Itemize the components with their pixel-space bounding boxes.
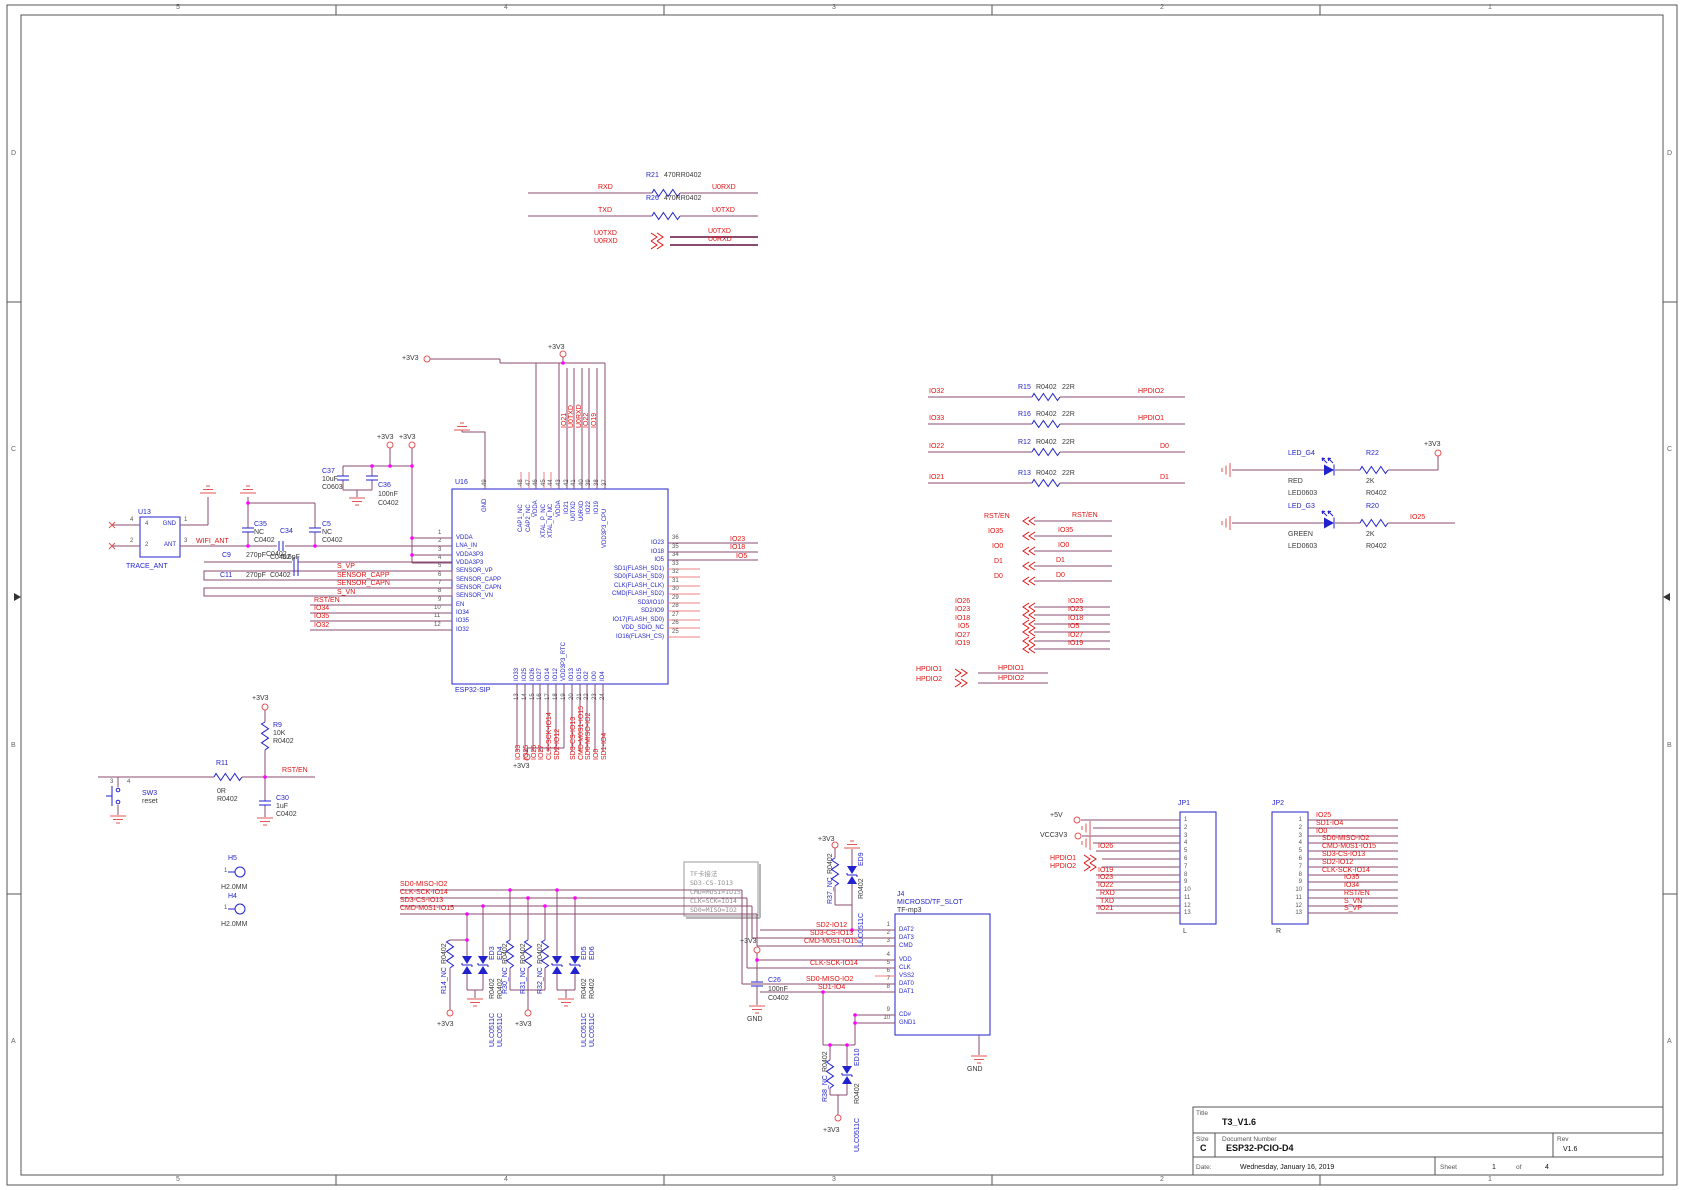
esp32-net: IO23 bbox=[730, 536, 745, 543]
esp32-pin: 35 bbox=[672, 544, 679, 550]
reset-val: reset bbox=[142, 798, 158, 805]
headers-net: S_VP bbox=[1344, 905, 1362, 912]
diode_arrays-ref: R32_NC bbox=[537, 967, 544, 994]
tf_slot-val: R0402 bbox=[858, 878, 865, 899]
tf_slot-ref: MICROSD/TF_SLOT bbox=[897, 899, 963, 906]
tf_slot-pin: 4 bbox=[887, 952, 890, 958]
power_caps-val: 100nF bbox=[378, 491, 398, 498]
power_caps-pwr: +3V3 bbox=[377, 434, 394, 441]
antenna-ref: TRACE_ANT bbox=[126, 563, 168, 570]
antenna-val: C0402 bbox=[270, 572, 291, 579]
esp32-pname: IO26 bbox=[530, 668, 536, 681]
esp32-pname: IO19 bbox=[594, 501, 600, 514]
headers-pin: 5 bbox=[1299, 848, 1302, 854]
offpage-net: D0 bbox=[994, 573, 1003, 580]
esp32-net: IO21 bbox=[561, 413, 568, 428]
esp32-pin: 29 bbox=[672, 595, 679, 601]
headers-pin: 3 bbox=[1299, 833, 1302, 839]
tf_note-note: CMD=MOSI=IO15 bbox=[690, 888, 741, 896]
esp32-pin: 18 bbox=[553, 693, 559, 700]
headers-pin: 10 bbox=[1295, 887, 1302, 893]
esp32-pin: 15 bbox=[530, 693, 536, 700]
esp32-net: IO0 bbox=[593, 749, 600, 760]
esp32-pname: IO2 bbox=[584, 671, 590, 681]
holes-ref: H4 bbox=[228, 893, 237, 900]
esp32-net: IO27 bbox=[538, 745, 545, 760]
tf_slot-ref: J4 bbox=[897, 891, 904, 898]
offpage-net: IO5 bbox=[1068, 623, 1079, 630]
reset-val: R0402 bbox=[273, 738, 294, 745]
diode_arrays-ref: ULC0511C bbox=[589, 1013, 596, 1047]
esp32-pname: SENSOR_VN bbox=[456, 593, 493, 599]
offpage-net: IO18 bbox=[955, 615, 970, 622]
esp32-pname: IO34 bbox=[456, 610, 469, 616]
zone-col: 2 bbox=[1160, 4, 1164, 11]
esp32-pin: 19 bbox=[561, 693, 567, 700]
holes-pin: 1 bbox=[224, 905, 227, 911]
antenna-net: WIFI_ANT bbox=[196, 538, 229, 545]
esp32-pin: 43 bbox=[556, 479, 562, 486]
offpage-net: IO19 bbox=[1068, 640, 1083, 647]
esp32-pin: 21 bbox=[577, 693, 583, 700]
reset-val: C0402 bbox=[276, 811, 297, 818]
zone-col: 2 bbox=[1160, 1176, 1164, 1183]
links-net: HPDIO1 bbox=[1138, 415, 1164, 422]
esp32-pin: 42 bbox=[564, 479, 570, 486]
tf_slot-ref: C26 bbox=[768, 977, 781, 984]
tf_slot-ref: ULC0511C bbox=[858, 913, 865, 947]
antenna-pin: 4 bbox=[145, 521, 148, 527]
headers-pin: 9 bbox=[1184, 879, 1187, 885]
esp32-pname: U0TXD bbox=[571, 501, 577, 521]
power_caps-pwr: +3V3 bbox=[399, 434, 416, 441]
tf_slot-pwr: GND bbox=[967, 1066, 983, 1073]
power_caps-val: C0402 bbox=[378, 500, 399, 507]
antenna-val: NC bbox=[254, 529, 264, 536]
headers-pin: 6 bbox=[1299, 856, 1302, 862]
headers-net: IO34 bbox=[1344, 882, 1359, 889]
headers-net: SD2-IO12 bbox=[1322, 859, 1353, 866]
esp32-pin: 9 bbox=[438, 597, 441, 603]
esp32-pin: 40 bbox=[579, 479, 585, 486]
power_caps-ref: C36 bbox=[378, 482, 391, 489]
zone-col: 4 bbox=[504, 1176, 508, 1183]
tf_slot-pwr: +3V3 bbox=[740, 938, 757, 945]
esp32-net: CMD-M0S1-IO15 bbox=[578, 706, 585, 760]
esp32-pname: VDDA3P3 bbox=[456, 560, 483, 566]
esp32-pname: SD2/IO9 bbox=[641, 608, 664, 614]
esp32-pin: 37 bbox=[602, 479, 608, 486]
links-net: D1 bbox=[1160, 474, 1169, 481]
tf_slot-pin: 1 bbox=[887, 922, 890, 928]
esp32-pin: 44 bbox=[548, 479, 554, 486]
zone-col: 3 bbox=[832, 1176, 836, 1183]
offpage-net: RST/EN bbox=[1072, 512, 1098, 519]
headers-net: TXD bbox=[1100, 898, 1114, 905]
title-label: Title bbox=[1196, 1110, 1208, 1117]
esp32-pname: CLK(FLASH_CLK) bbox=[614, 583, 664, 589]
antenna-net: IO32 bbox=[314, 622, 329, 629]
zone-row: B bbox=[1667, 742, 1672, 749]
holes-val: H2.0MM bbox=[221, 884, 247, 891]
tf_slot-pwr: +3V3 bbox=[818, 836, 835, 843]
serial-net: U0TXD bbox=[708, 228, 731, 235]
reset-ref: R11 bbox=[216, 760, 228, 767]
reset-ref: C30 bbox=[276, 795, 289, 802]
esp32-pname: U0RXD bbox=[579, 501, 585, 521]
leds-pwr: +3V3 bbox=[1424, 441, 1441, 448]
sheet-title: T3_V1.6 bbox=[1222, 1119, 1256, 1126]
offpage-net: D1 bbox=[994, 558, 1003, 565]
links-ref: R13 bbox=[1018, 470, 1031, 477]
tf_slot-ref: ULC0511C bbox=[854, 1118, 861, 1152]
leds-val: LED0603 bbox=[1288, 543, 1317, 550]
esp32-net: CLK-SCK-IO14 bbox=[546, 712, 553, 760]
esp32-pin: 6 bbox=[438, 572, 441, 578]
tf_slot-pname: CD# bbox=[899, 1012, 911, 1018]
offpage-net: IO35 bbox=[988, 528, 1003, 535]
sheet-number: 1 bbox=[1492, 1164, 1496, 1171]
tf_slot-pin: 8 bbox=[887, 984, 890, 990]
esp32-pname: VDDA3P3 bbox=[456, 552, 483, 558]
component-outlines bbox=[106, 489, 1308, 1035]
tf_slot-pin: 2 bbox=[887, 930, 890, 936]
antenna-val: 270pF bbox=[246, 572, 266, 579]
offpage-net: IO23 bbox=[1068, 606, 1083, 613]
diode_arrays-ref: R30_NC bbox=[502, 967, 509, 994]
esp32-pwr: +3V3 bbox=[513, 763, 530, 770]
headers-pin: 13 bbox=[1184, 910, 1191, 916]
headers-net: SD0-MISO-IO2 bbox=[1322, 835, 1369, 842]
diode_arrays-val: R0402 bbox=[489, 978, 496, 999]
bus-net: SD3-CS-IO13 bbox=[400, 897, 443, 904]
esp32-pin: 20 bbox=[569, 693, 575, 700]
tf_slot-pname: CLK bbox=[899, 965, 911, 971]
headers-pin: 4 bbox=[1299, 840, 1302, 846]
esp32-pname: VDD3P3_RTC bbox=[561, 642, 567, 681]
esp32-pin: 34 bbox=[672, 552, 679, 558]
antenna-ref: C35 bbox=[254, 521, 267, 528]
esp32-net: IO22 bbox=[583, 413, 590, 428]
headers-net: RXD bbox=[1100, 890, 1115, 897]
esp32-pin: 23 bbox=[592, 693, 598, 700]
zone-row: C bbox=[11, 446, 16, 453]
headers-net: SD1-IO4 bbox=[1316, 820, 1343, 827]
offpage-net: IO27 bbox=[1068, 632, 1083, 639]
headers-pin: 5 bbox=[1184, 848, 1187, 854]
tf_slot-ref: R38_NC bbox=[822, 1075, 829, 1102]
leds-val: R0402 bbox=[1366, 490, 1387, 497]
reset-pwr: +3V3 bbox=[252, 695, 269, 702]
esp32-pname: CAP2_NC bbox=[526, 504, 532, 532]
antenna-val: 270pF bbox=[246, 552, 266, 559]
reset-val: R0402 bbox=[217, 796, 238, 803]
leds-ref: R20 bbox=[1366, 503, 1379, 510]
offpage-net: IO27 bbox=[955, 632, 970, 639]
power_caps-val: C0603 bbox=[322, 484, 343, 491]
tf_slot-pname: DAT2 bbox=[899, 927, 914, 933]
esp32-net: SD0-MISO-IO2 bbox=[585, 713, 592, 760]
links-val: R0402 bbox=[1036, 411, 1057, 418]
tf_slot-pin: 5 bbox=[887, 960, 890, 966]
diode_arrays-val: R0402 bbox=[581, 978, 588, 999]
esp32-pin: 36 bbox=[672, 535, 679, 541]
headers-net: RST/EN bbox=[1344, 890, 1370, 897]
esp32-pname: IO4 bbox=[600, 671, 606, 681]
zone-col: 4 bbox=[504, 4, 508, 11]
esp32-pin: 3 bbox=[438, 547, 441, 553]
diode_arrays-val: R0402 bbox=[441, 943, 448, 964]
serial-net: TXD bbox=[598, 207, 612, 214]
zone-row: D bbox=[1667, 150, 1672, 157]
tf_slot-ref: ED9 bbox=[858, 852, 865, 866]
esp32-net: SD1-IO4 bbox=[601, 733, 608, 760]
sheet-of-label: of bbox=[1516, 1164, 1521, 1171]
offpage-net: IO0 bbox=[992, 543, 1003, 550]
links-net: IO21 bbox=[929, 474, 944, 481]
zone-row: B bbox=[11, 742, 16, 749]
zone-col: 1 bbox=[1488, 1176, 1492, 1183]
esp32-pname: IO16(FLASH_CS) bbox=[616, 634, 664, 640]
tf_slot-net: CLK-SCK-IO14 bbox=[810, 960, 858, 967]
headers-pin: 7 bbox=[1184, 864, 1187, 870]
tf_note-note: SD3-CS-IO13 bbox=[690, 879, 733, 887]
tf_slot-pname: VSS2 bbox=[899, 973, 914, 979]
links-net: IO32 bbox=[929, 388, 944, 395]
esp32-net: IO26 bbox=[531, 745, 538, 760]
esp32-pwr: +3V3 bbox=[548, 344, 565, 351]
diode_arrays-ref: ULC0511C bbox=[497, 1013, 504, 1047]
bus-net: CMD-M0S1-IO15 bbox=[400, 905, 454, 912]
leds-val: 2K bbox=[1366, 531, 1375, 538]
diode_arrays-pwr: +3V3 bbox=[437, 1021, 454, 1028]
zone-row: A bbox=[11, 1038, 16, 1045]
esp32-pname: EN bbox=[456, 602, 464, 608]
serial-ref: R21 bbox=[646, 172, 659, 179]
reset-pin: 3 bbox=[110, 779, 113, 785]
tf_slot-net: SD0-MISO-IO2 bbox=[806, 976, 853, 983]
tf_slot-pwr: +3V3 bbox=[823, 1127, 840, 1134]
esp32-pname: VDD3P3_CPU bbox=[602, 509, 608, 548]
esp32-net: U0RXD bbox=[576, 404, 583, 428]
holes-val: H2.0MM bbox=[221, 921, 247, 928]
esp32-net: IO19 bbox=[591, 413, 598, 428]
headers-net: IO35 bbox=[1344, 874, 1359, 881]
antenna-val: C0402 bbox=[322, 537, 343, 544]
serial-val: 470RR0402 bbox=[664, 195, 701, 202]
antenna-val: C0402 bbox=[270, 554, 291, 561]
serial-net: U0RXD bbox=[708, 236, 732, 243]
esp32-ref: ESP32-SIP bbox=[455, 687, 490, 694]
antenna-net: S_VN bbox=[337, 589, 355, 596]
esp32-pname: IO13 bbox=[569, 668, 575, 681]
esp32-net: IO25 bbox=[523, 745, 530, 760]
antenna-pin: 2 bbox=[145, 542, 148, 548]
tf_slot-val: R0402 bbox=[854, 1083, 861, 1104]
tf_slot-pname: DAT1 bbox=[899, 989, 914, 995]
schematic-sheet: R21470RR0402RXDU0RXDR26470RR0402TXDU0TXD… bbox=[0, 0, 1684, 1190]
esp32-pname: IO12 bbox=[553, 668, 559, 681]
headers-net: HPDIO2 bbox=[1050, 863, 1076, 870]
headers-net: SD3-CS-IO13 bbox=[1322, 851, 1365, 858]
esp32-pin: 22 bbox=[584, 693, 590, 700]
esp32-pin: 49 bbox=[482, 479, 488, 486]
diode_arrays-ref: ED5 bbox=[581, 946, 588, 960]
reset-pin: 4 bbox=[127, 779, 130, 785]
esp32-pin: 10 bbox=[434, 605, 441, 611]
esp32-pin: 25 bbox=[672, 629, 679, 635]
esp32-pname: XTAL_P_NC bbox=[541, 504, 547, 538]
esp32-pname: IO5 bbox=[654, 557, 664, 563]
holes-ref: H5 bbox=[228, 855, 237, 862]
esp32-pname: IO18 bbox=[651, 549, 664, 555]
headers-net: CMD-M0S1-IO15 bbox=[1322, 843, 1376, 850]
reset-ref: SW3 bbox=[142, 790, 157, 797]
antenna-pin: 3 bbox=[184, 538, 187, 544]
antenna-ref: C9 bbox=[222, 552, 231, 559]
leds-val: 2K bbox=[1366, 478, 1375, 485]
esp32-net: IO18 bbox=[730, 544, 745, 551]
tf_slot-pname: DAT3 bbox=[899, 935, 914, 941]
tf_slot-ref: ED10 bbox=[854, 1048, 861, 1066]
headers-pin: 9 bbox=[1299, 879, 1302, 885]
serial-ref: R26 bbox=[646, 195, 659, 202]
esp32-pin: 14 bbox=[522, 693, 528, 700]
offpage-net: HPDIO2 bbox=[916, 676, 942, 683]
headers-pin: 12 bbox=[1295, 903, 1302, 909]
sheet-total: 4 bbox=[1545, 1164, 1549, 1171]
antenna-net: RST/EN bbox=[314, 597, 340, 604]
esp32-pname: IO14 bbox=[545, 668, 551, 681]
headers-net: IO25 bbox=[1316, 812, 1331, 819]
tf_slot-pname: GND1 bbox=[899, 1020, 916, 1026]
headers-pin: 11 bbox=[1184, 895, 1190, 901]
holes-pin: 1 bbox=[224, 868, 227, 874]
date-value: Wednesday, January 16, 2019 bbox=[1240, 1164, 1334, 1171]
esp32-pin: 27 bbox=[672, 612, 679, 618]
bus-net: SD0-MISO-IO2 bbox=[400, 881, 447, 888]
headers-pin: 1 bbox=[1299, 817, 1302, 823]
headers-net: IO19 bbox=[1098, 867, 1113, 874]
headers-net: CLK-SCK-IO14 bbox=[1322, 867, 1370, 874]
esp32-pin: 16 bbox=[537, 693, 543, 700]
links-ref: R15 bbox=[1018, 384, 1031, 391]
links-val: R0402 bbox=[1036, 439, 1057, 446]
links-val: R0402 bbox=[1036, 470, 1057, 477]
headers-ref: JP1 bbox=[1178, 800, 1190, 807]
esp32-net: IO5 bbox=[736, 553, 747, 560]
headers-pin: 11 bbox=[1296, 895, 1302, 901]
junction-dots bbox=[246, 361, 857, 1047]
serial-net: U0TXD bbox=[594, 230, 617, 237]
esp32-pname: IO0 bbox=[592, 671, 598, 681]
links-net: IO22 bbox=[929, 443, 944, 450]
tf_slot-pname: DAT0 bbox=[899, 981, 914, 987]
esp32-pname: IO25 bbox=[522, 668, 528, 681]
esp32-pin: 24 bbox=[600, 693, 606, 700]
tf_slot-pwr: GND bbox=[747, 1016, 763, 1023]
tf_slot-pin: 9 bbox=[887, 1007, 890, 1013]
diode_arrays-val: R0402 bbox=[589, 978, 596, 999]
headers-pin: 2 bbox=[1299, 825, 1302, 831]
zone-row: C bbox=[1667, 446, 1672, 453]
esp32-pname: SD0(FLASH_SD3) bbox=[614, 574, 664, 580]
antenna-pin: 2 bbox=[130, 538, 133, 544]
tf_note-note: SD0=MISO=IO2 bbox=[690, 906, 737, 914]
serial-net: RXD bbox=[598, 184, 613, 191]
antenna-val: C0402 bbox=[254, 537, 275, 544]
headers-pin: 4 bbox=[1184, 840, 1187, 846]
esp32-pname: IO15 bbox=[577, 668, 583, 681]
power-symbols bbox=[109, 351, 1441, 1121]
links-val: 22R bbox=[1062, 384, 1075, 391]
links-val: 22R bbox=[1062, 439, 1075, 446]
headers-net: S_VN bbox=[1344, 898, 1362, 905]
offpage-net: RST/EN bbox=[984, 513, 1010, 520]
antenna-pin: 1 bbox=[184, 517, 187, 523]
esp32-pin: 7 bbox=[438, 580, 441, 586]
esp32-pin: 41 bbox=[571, 479, 577, 486]
esp32-pin: 47 bbox=[526, 479, 532, 486]
offpage-net: HPDIO2 bbox=[998, 675, 1024, 682]
leds-val: R0402 bbox=[1366, 543, 1387, 550]
zone-col: 3 bbox=[832, 4, 836, 11]
tf_slot-pname: CMD bbox=[899, 943, 913, 949]
serial-net: U0RXD bbox=[712, 184, 736, 191]
headers-pin: 13 bbox=[1295, 910, 1302, 916]
esp32-pin: 45 bbox=[541, 479, 547, 486]
antenna-ref: C11 bbox=[220, 572, 232, 579]
antenna-pin: 4 bbox=[130, 517, 133, 523]
esp32-pname: SD1(FLASH_SD1) bbox=[614, 566, 664, 572]
esp32-pin: 28 bbox=[672, 603, 679, 609]
esp32-pin: 46 bbox=[533, 479, 539, 486]
schematic-drawing bbox=[0, 0, 1684, 1190]
esp32-pin: 32 bbox=[672, 569, 679, 575]
esp32-pin: 33 bbox=[672, 561, 679, 567]
leds-ref: LED_G3 bbox=[1288, 503, 1315, 510]
esp32-pname: IO22 bbox=[586, 501, 592, 514]
esp32-pin: 12 bbox=[434, 622, 441, 628]
offpage-net: IO19 bbox=[955, 640, 970, 647]
leds-val: RED bbox=[1288, 478, 1303, 485]
border-frame bbox=[7, 5, 1677, 1185]
zone-col: 1 bbox=[1488, 4, 1492, 11]
tf_slot-pin: 7 bbox=[887, 976, 890, 982]
links-net: D0 bbox=[1160, 443, 1169, 450]
tf_slot-val: R0402 bbox=[822, 1051, 829, 1072]
headers-pin: 12 bbox=[1184, 903, 1191, 909]
esp32-pname: IO23 bbox=[651, 540, 664, 546]
esp32-pname: IO17(FLASH_SD0) bbox=[613, 617, 664, 623]
headers-pin: 3 bbox=[1184, 833, 1187, 839]
esp32-pin: 1 bbox=[438, 530, 441, 536]
diode_arrays-ref: ED3 bbox=[489, 946, 496, 960]
reset-val: 1uF bbox=[276, 803, 288, 810]
headers-net: IO26 bbox=[1098, 843, 1113, 850]
tf_note-note: TF卡接法 bbox=[690, 868, 717, 878]
zone-col: 5 bbox=[176, 1176, 180, 1183]
sheet-label: Sheet bbox=[1440, 1164, 1457, 1171]
esp32-pname: VDDA bbox=[456, 535, 473, 541]
headers-pin: 7 bbox=[1299, 864, 1302, 870]
diode_arrays-ref: R31_NC bbox=[520, 967, 527, 994]
tf_slot-val: TF-mp3 bbox=[897, 907, 922, 914]
antenna-net: SENSOR_CAPN bbox=[337, 580, 390, 587]
date-label: Date: bbox=[1196, 1164, 1212, 1171]
esp32-pin: 2 bbox=[438, 538, 441, 544]
reset-net: RST/EN bbox=[282, 767, 308, 774]
